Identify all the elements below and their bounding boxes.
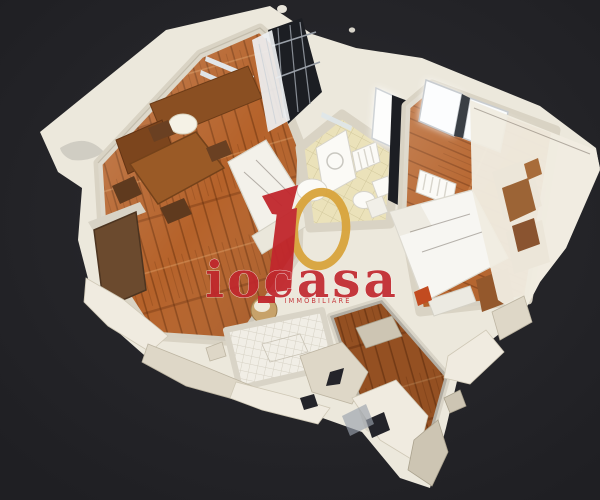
brand-tagline: IMMOBILIARE [285,297,352,305]
apartment-model [40,5,600,488]
floating-speck [349,27,355,32]
table-lamp [169,114,197,134]
floating-speck [277,5,287,13]
dollhouse-viewer[interactable]: iocasa IMMOBILIARE [0,0,600,500]
tagline-block [258,296,275,303]
dollhouse-canvas: iocasa IMMOBILIARE [0,0,600,500]
